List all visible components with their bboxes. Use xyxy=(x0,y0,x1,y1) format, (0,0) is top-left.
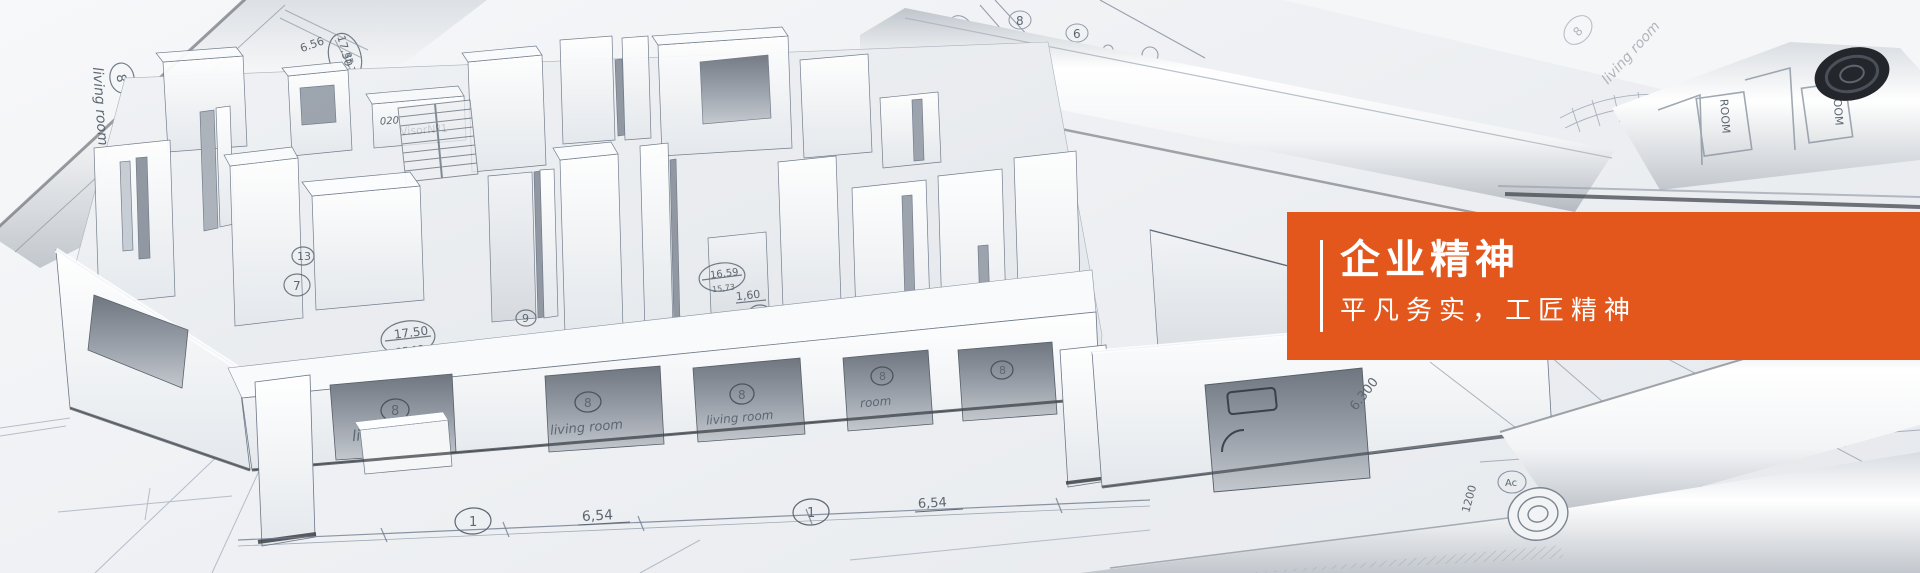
room-print-label: ROOM xyxy=(1717,99,1732,134)
circled-8-label: 8 xyxy=(879,370,886,383)
slogan-panel: 企业精神 平凡务实，工匠精神 xyxy=(1287,212,1920,360)
dim-label: 6,54 xyxy=(918,495,948,511)
circled-9-label: 9 xyxy=(522,312,529,325)
circled-1-label: 1 xyxy=(469,515,477,530)
circled-8-label: 8 xyxy=(999,364,1006,377)
dim-label: 6,54 xyxy=(582,507,614,525)
dimension-line-bottom: 1 1 6,54 6,54 xyxy=(238,495,1150,546)
circled-8-label: 8 xyxy=(738,388,746,402)
circled-8-label: 8 xyxy=(1016,14,1024,28)
dim-label: 1200 xyxy=(1459,484,1479,514)
circled-1-label: 1 xyxy=(807,506,815,521)
stairs-drawing xyxy=(398,100,478,182)
circled-8-label: 8 xyxy=(584,396,592,410)
hero-banner: 8 living room 17.50 35.13 6.56 8 6 17.50… xyxy=(0,0,1920,573)
circled-8-label: 8 xyxy=(391,404,399,419)
circled-ac-label: Ac xyxy=(1505,478,1517,489)
circled-13-label: 13 xyxy=(297,250,311,263)
circled-6-label: 6 xyxy=(1073,27,1081,41)
panel-subtitle: 平凡务实，工匠精神 xyxy=(1340,296,1920,325)
circled-7-label: 7 xyxy=(293,279,301,293)
dim-label: 1,60 xyxy=(735,288,761,303)
room-label: room xyxy=(859,394,891,411)
living-room-label: living room xyxy=(89,67,110,147)
panel-title: 企业精神 xyxy=(1340,238,1920,282)
dim-label: 020 xyxy=(380,115,400,127)
divider-line xyxy=(1320,240,1323,332)
